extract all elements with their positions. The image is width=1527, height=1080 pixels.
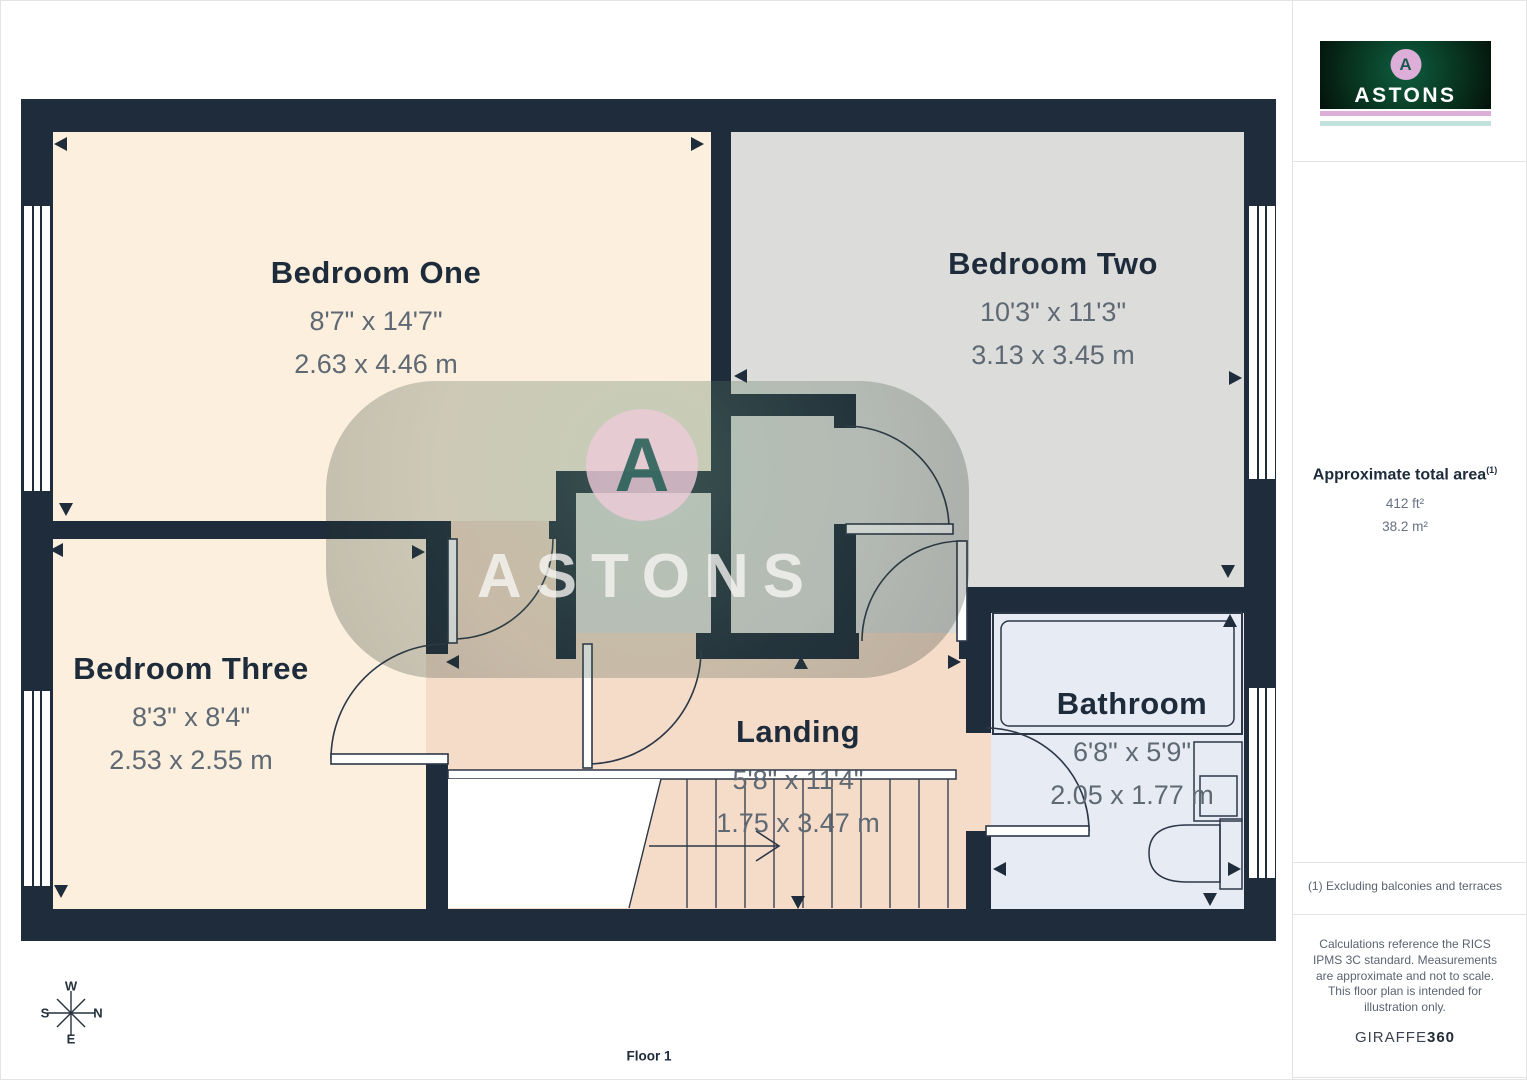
area-heading: Approximate total area(1) — [1295, 465, 1515, 484]
watermark: A ASTONS — [326, 381, 969, 678]
room-dimensions-metric: 2.53 x 2.55 m — [73, 739, 309, 782]
room-dimensions-metric: 2.05 x 1.77 m — [1050, 774, 1214, 817]
compass-north-label: N — [93, 1006, 102, 1021]
logo-pink-bar — [1320, 111, 1491, 116]
room-name: Landing — [716, 714, 880, 750]
room-label-bedroom-two: Bedroom Two 10'3" x 11'3" 3.13 x 3.45 m — [948, 246, 1158, 377]
astons-logo-icon: A — [1390, 49, 1421, 80]
floor-plan: A ASTONS Bedroom One 8'7" x 14'7" 2.63 x… — [1, 1, 1291, 1080]
area-metric: 38.2 m² — [1295, 515, 1515, 538]
window-mullion — [1265, 206, 1267, 479]
sidebar-divider — [1293, 161, 1527, 162]
room-name: Bedroom Three — [73, 651, 309, 687]
window — [1249, 688, 1275, 878]
floor-label: Floor 1 — [626, 1049, 671, 1064]
room-name: Bathroom — [1050, 686, 1214, 722]
window-mullion — [1257, 688, 1259, 878]
credit-normal: GIRAFFE — [1355, 1029, 1427, 1046]
astons-logo: A ASTONS — [1320, 41, 1491, 109]
window-mullion — [32, 206, 34, 491]
room-dimensions-metric: 1.75 x 3.47 m — [716, 802, 880, 845]
compass-south-label: S — [41, 1006, 50, 1021]
compass-east-label: E — [67, 1032, 76, 1047]
sidebar-divider — [1292, 1, 1293, 1080]
compass-west-label: W — [65, 979, 77, 994]
bathroom-doorway-floor — [966, 733, 991, 831]
room-dimensions-metric: 3.13 x 3.45 m — [948, 334, 1158, 377]
room-label-bedroom-one: Bedroom One 8'7" x 14'7" 2.63 x 4.46 m — [271, 255, 481, 386]
room-dimensions-imperial: 10'3" x 11'3" — [948, 291, 1158, 334]
area-heading-text: Approximate total area — [1313, 466, 1486, 483]
window — [1249, 206, 1275, 479]
wall-segment — [426, 759, 448, 909]
area-footnote: (1) Excluding balconies and terraces — [1295, 879, 1515, 893]
wall-segment — [21, 99, 1276, 132]
wall-segment — [21, 909, 1276, 941]
room-dimensions-imperial: 8'3" x 8'4" — [73, 696, 309, 739]
credit-bold: 360 — [1427, 1029, 1455, 1046]
room-dimensions-imperial: 5'8" x 11'4" — [716, 759, 880, 802]
watermark-logo-icon: A — [586, 409, 698, 521]
room-name: Bedroom One — [271, 255, 481, 291]
window-mullion — [1257, 206, 1259, 479]
compass-icon — [47, 991, 95, 1035]
room-dimensions-metric: 2.63 x 4.46 m — [271, 343, 481, 386]
room-name: Bedroom Two — [948, 246, 1158, 282]
area-heading-superscript: (1) — [1486, 465, 1497, 475]
floorplan-page: A ASTONS Bedroom One 8'7" x 14'7" 2.63 x… — [0, 0, 1527, 1080]
sidebar-divider — [1293, 914, 1527, 915]
sidebar-divider — [1293, 862, 1527, 863]
watermark-text: ASTONS — [326, 541, 969, 612]
window-mullion — [1265, 688, 1267, 878]
area-imperial: 412 ft² — [1295, 492, 1515, 515]
wall-segment — [966, 587, 1244, 613]
room-label-bathroom: Bathroom 6'8" x 5'9" 2.05 x 1.77 m — [1050, 686, 1214, 817]
approximate-total-area: Approximate total area(1) 412 ft² 38.2 m… — [1295, 465, 1515, 538]
wall-segment — [966, 613, 991, 733]
wall-segment — [966, 831, 991, 909]
astons-logo-brand: ASTONS — [1320, 84, 1491, 108]
window — [24, 691, 50, 886]
disclaimer-text: Calculations reference the RICS IPMS 3C … — [1307, 937, 1503, 1016]
room-dimensions-imperial: 6'8" x 5'9" — [1050, 731, 1214, 774]
room-dimensions-imperial: 8'7" x 14'7" — [271, 300, 481, 343]
window-mullion — [40, 206, 42, 491]
room-label-landing: Landing 5'8" x 11'4" 1.75 x 3.47 m — [716, 714, 880, 845]
logo-teal-bar — [1320, 121, 1491, 126]
window-mullion — [40, 691, 42, 886]
sidebar-divider — [1293, 1077, 1527, 1078]
giraffe360-credit: GIRAFFE360 — [1295, 1029, 1515, 1046]
window-mullion — [32, 691, 34, 886]
window — [24, 206, 50, 491]
room-label-bedroom-three: Bedroom Three 8'3" x 8'4" 2.53 x 2.55 m — [73, 651, 309, 782]
